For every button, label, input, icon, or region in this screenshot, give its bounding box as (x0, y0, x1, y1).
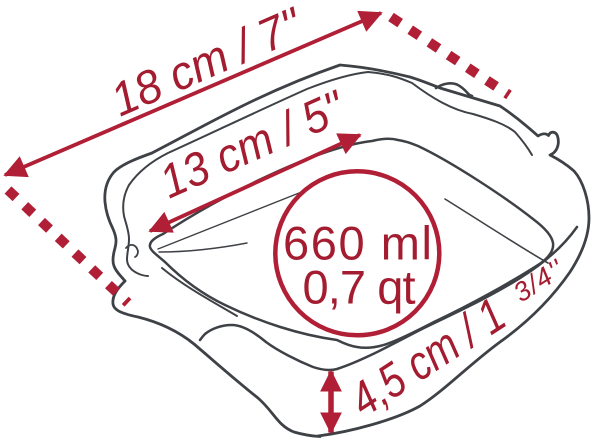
svg-text:3/4'': 3/4'' (508, 254, 569, 308)
svg-text:0,7 qt: 0,7 qt (303, 261, 416, 314)
